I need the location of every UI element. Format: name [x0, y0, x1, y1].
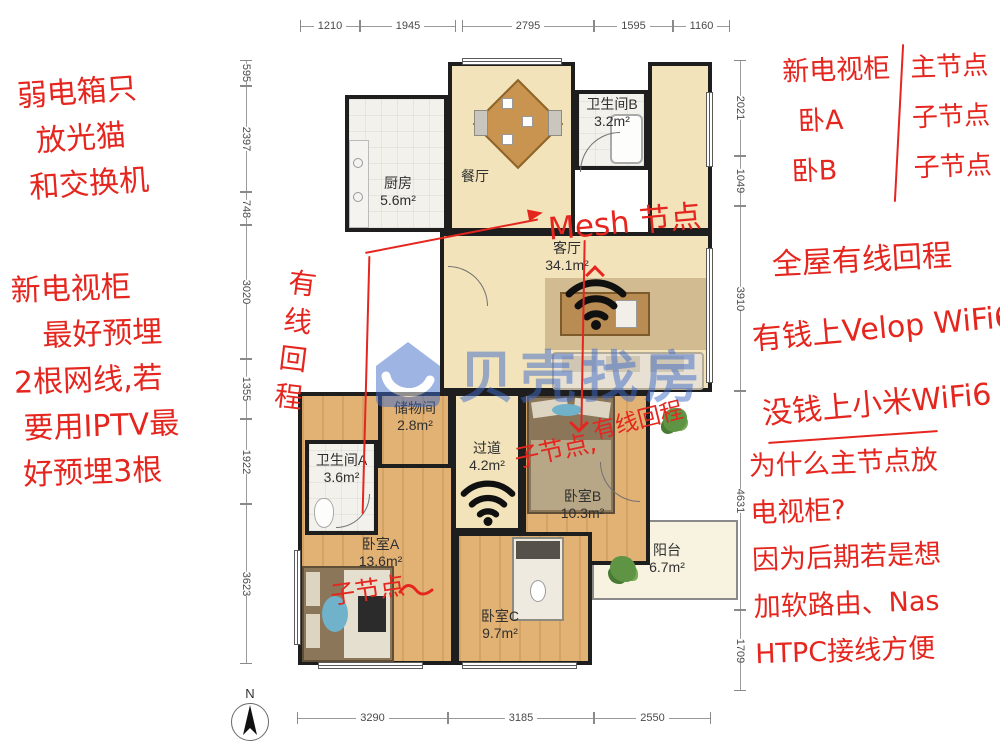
- dim-left: 1922: [240, 419, 252, 504]
- window: [706, 92, 713, 167]
- note-weak-current-box: 弱电箱只 放光猫 和交换机: [15, 66, 150, 212]
- stove-icon: [353, 158, 363, 168]
- label-bath-a: 卫生间A 3.6m²: [305, 452, 378, 486]
- dim-left: 1355: [240, 359, 252, 419]
- dim-top: 1945: [360, 20, 456, 32]
- dim-left: 3623: [240, 504, 252, 664]
- window: [318, 662, 423, 669]
- sofa-cushion: [606, 356, 640, 372]
- wardrobe-handle: [530, 580, 546, 602]
- dim-right: 4631: [734, 391, 746, 610]
- label-kitchen: 厨房 5.6m²: [358, 175, 438, 209]
- ink-separator-line: [894, 44, 904, 202]
- note-why-main-node: 为什么主节点放 电视柜? 因为后期若是想 加软路由、Nas HTPC接线方便: [748, 437, 945, 678]
- north-label: N: [245, 686, 254, 701]
- compass-ring: [231, 703, 269, 741]
- toilet: [314, 498, 334, 528]
- plate-icon: [522, 116, 533, 127]
- note-mapping-roles: 主节点 子节点 子节点: [909, 41, 992, 194]
- dim-right: 3910: [734, 206, 746, 391]
- dim-right: 2021: [734, 60, 746, 156]
- dim-bottom: 2550: [594, 712, 711, 724]
- window: [294, 550, 301, 645]
- wardrobe-top: [516, 541, 560, 559]
- note-mapping-locations: 新电视柜 卧A 卧B: [781, 44, 894, 198]
- dim-bottom: 3290: [297, 712, 448, 724]
- sofa-cushion: [650, 356, 684, 372]
- dim-left: 595: [240, 60, 252, 86]
- dim-left: 2397: [240, 86, 252, 192]
- plate-icon: [502, 134, 513, 145]
- plate-icon: [502, 98, 513, 109]
- dining-chair: [474, 110, 488, 136]
- wifi-icon: [458, 474, 518, 526]
- window: [462, 662, 577, 669]
- north-arrow-icon: [240, 704, 260, 738]
- label-dining: 餐厅: [445, 168, 505, 185]
- note-velop: 有钱上Velop WiFi6: [750, 295, 1000, 364]
- window: [462, 58, 562, 65]
- bed-a-pillow: [306, 572, 320, 606]
- label-storage: 储物间 2.8m²: [378, 400, 452, 434]
- note-tv-cabinet-cabling: 新电视柜 最好预埋 2根网线,若 要用IPTV最 好预埋3根: [10, 263, 182, 499]
- label-balcony: 阳台 6.7m²: [628, 542, 706, 576]
- dim-top: 1160: [673, 20, 730, 32]
- dim-top: 2795: [462, 20, 594, 32]
- sofa-cushion: [562, 356, 596, 372]
- bed-a-pillow: [306, 614, 320, 648]
- dim-top: 1210: [300, 20, 360, 32]
- dim-left: 748: [240, 192, 252, 225]
- dim-top: 1595: [594, 20, 673, 32]
- label-bath-b: 卫生间B 3.2m²: [574, 96, 650, 130]
- note-xiaomi: 没钱上小米WiFi6: [760, 372, 993, 438]
- dim-bottom: 3185: [448, 712, 594, 724]
- dim-left: 3020: [240, 225, 252, 359]
- north-compass: N: [228, 686, 272, 741]
- dim-right: 1709: [734, 610, 746, 691]
- label-bed-b: 卧室B 10.3m²: [540, 488, 625, 522]
- dim-right: 1049: [734, 156, 746, 206]
- ink-squiggle: [398, 580, 434, 600]
- floorplan-page: 厨房 5.6m² 餐厅 卫生间B 3.2m² 客厅 34.1m² 储物间 2.8…: [0, 0, 1000, 750]
- dining-chair: [548, 110, 562, 136]
- window: [706, 248, 713, 383]
- note-full-backhaul: 全屋有线回程: [771, 233, 953, 288]
- label-bed-c: 卧室C 9.7m²: [455, 608, 545, 642]
